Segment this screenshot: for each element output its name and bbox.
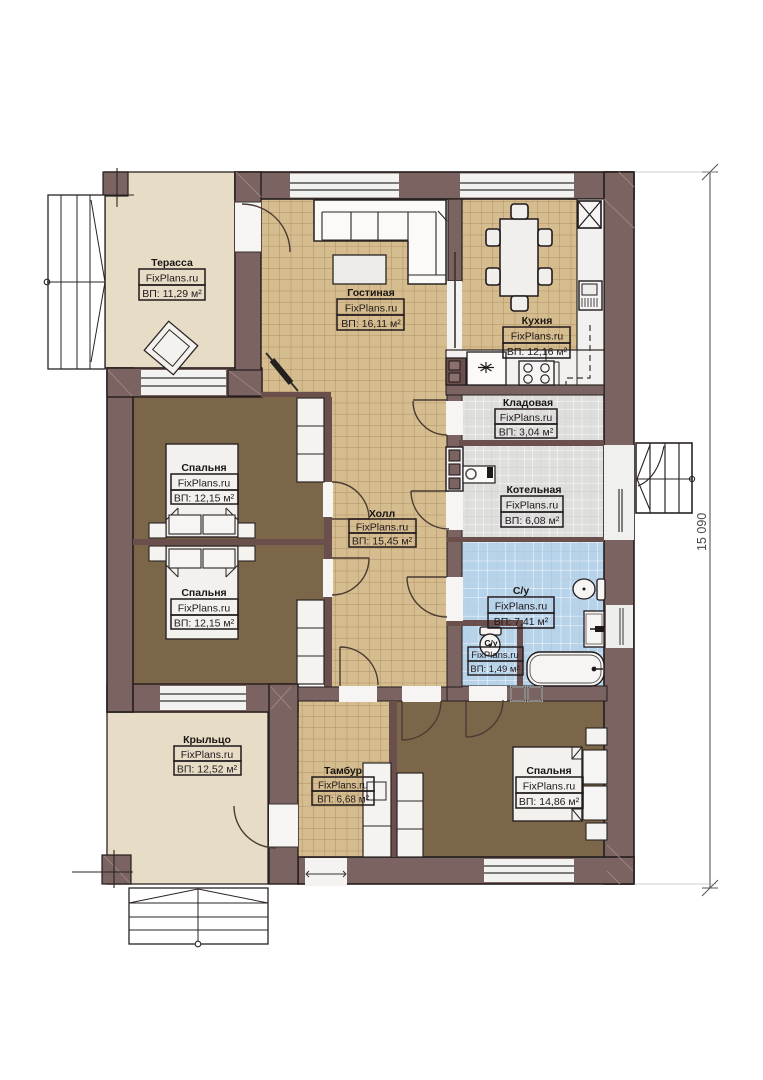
svg-text:Холл: Холл bbox=[369, 508, 395, 520]
svg-text:FixPlans.ru: FixPlans.ru bbox=[523, 781, 576, 793]
svg-text:ВП: 11,29 м²: ВП: 11,29 м² bbox=[142, 288, 202, 300]
svg-text:ВП: 12,16 м²: ВП: 12,16 м² bbox=[507, 346, 568, 358]
svg-text:Тамбур: Тамбур bbox=[324, 765, 362, 777]
svg-text:FixPlans.ru: FixPlans.ru bbox=[356, 522, 409, 534]
svg-text:FixPlans.ru: FixPlans.ru bbox=[471, 650, 519, 661]
svg-text:ВП: 16,11 м²: ВП: 16,11 м² bbox=[341, 318, 401, 330]
svg-text:15 090: 15 090 bbox=[695, 513, 709, 551]
svg-text:Котельная: Котельная bbox=[507, 484, 562, 496]
svg-text:Кладовая: Кладовая bbox=[503, 397, 553, 409]
svg-text:FixPlans.ru: FixPlans.ru bbox=[178, 478, 231, 490]
svg-text:FixPlans.ru: FixPlans.ru bbox=[495, 601, 548, 613]
svg-text:Кухня: Кухня bbox=[522, 315, 553, 327]
svg-text:ВП: 3,04 м²: ВП: 3,04 м² bbox=[499, 427, 554, 439]
svg-text:С/у: С/у bbox=[513, 585, 530, 597]
svg-text:FixPlans.ru: FixPlans.ru bbox=[345, 303, 398, 315]
svg-text:ВП: 14,86 м²: ВП: 14,86 м² bbox=[519, 796, 580, 808]
svg-text:FixPlans.ru: FixPlans.ru bbox=[506, 500, 559, 512]
svg-text:Спальня: Спальня bbox=[181, 462, 226, 474]
svg-text:ВП: 12,52 м²: ВП: 12,52 м² bbox=[177, 764, 238, 776]
svg-text:FixPlans.ru: FixPlans.ru bbox=[181, 749, 234, 761]
svg-text:FixPlans.ru: FixPlans.ru bbox=[178, 603, 231, 615]
svg-text:Терасса: Терасса bbox=[151, 257, 193, 269]
svg-text:Крыльцо: Крыльцо bbox=[183, 734, 231, 746]
svg-text:ВП: 6,68 м²: ВП: 6,68 м² bbox=[317, 795, 370, 806]
svg-text:FixPlans.ru: FixPlans.ru bbox=[511, 331, 564, 343]
svg-text:Спальня: Спальня bbox=[526, 765, 571, 777]
svg-text:ВП: 15,45 м²: ВП: 15,45 м² bbox=[352, 536, 413, 548]
svg-text:FixPlans.ru: FixPlans.ru bbox=[146, 273, 199, 285]
svg-text:FixPlans.ru: FixPlans.ru bbox=[318, 781, 368, 792]
svg-text:ВП: 7,41 м²: ВП: 7,41 м² bbox=[494, 616, 549, 628]
svg-text:ВП: 1,49 м²: ВП: 1,49 м² bbox=[470, 664, 519, 675]
svg-text:FixPlans.ru: FixPlans.ru bbox=[500, 412, 553, 424]
svg-text:ВП: 6,08 м²: ВП: 6,08 м² bbox=[505, 515, 560, 527]
svg-text:Спальня: Спальня bbox=[181, 587, 226, 599]
svg-text:ВП: 12,15 м²: ВП: 12,15 м² bbox=[174, 618, 235, 630]
svg-text:Гостиная: Гостиная bbox=[347, 287, 394, 299]
svg-text:ВП: 12,15 м²: ВП: 12,15 м² bbox=[174, 493, 235, 505]
